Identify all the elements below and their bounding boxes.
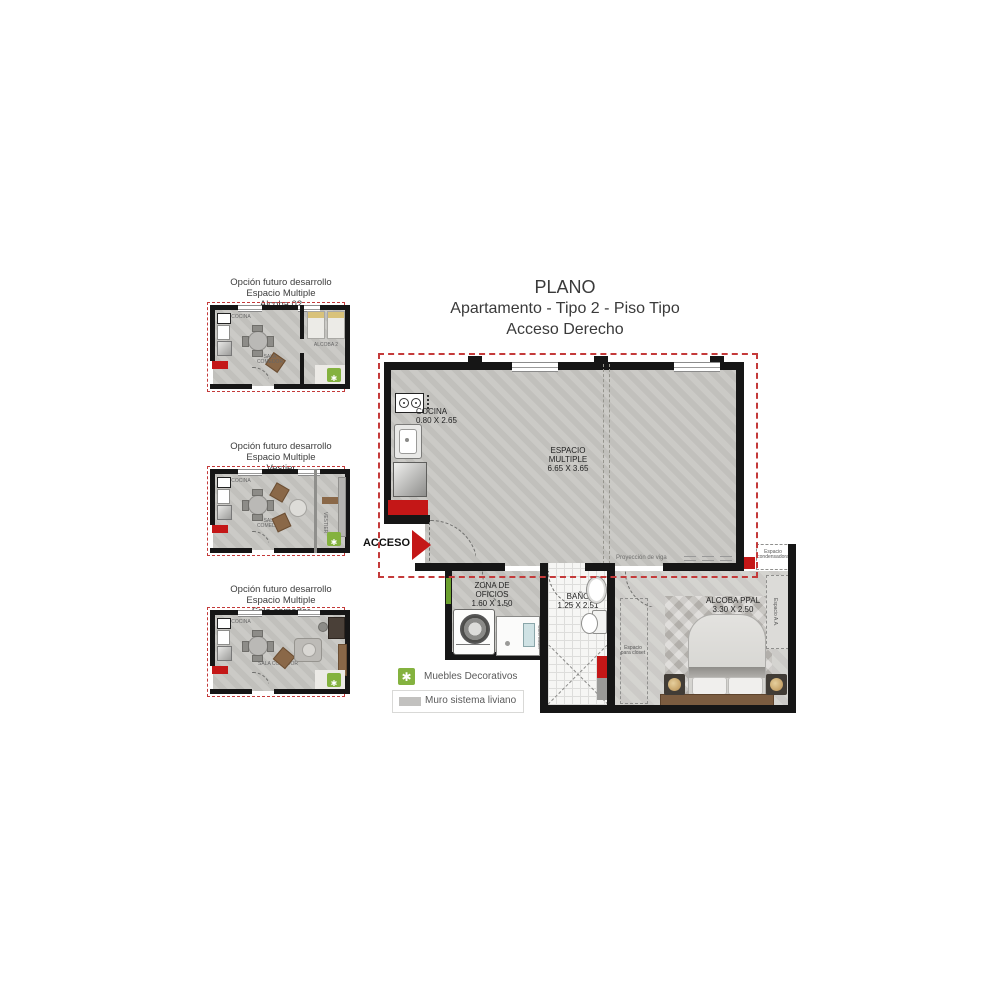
wall-segment bbox=[274, 548, 350, 553]
wall-segment bbox=[210, 469, 350, 474]
window bbox=[238, 305, 262, 312]
chair-icon bbox=[242, 500, 249, 511]
muro-liviano-swatch bbox=[399, 697, 421, 706]
legend-item-2: Muro sistema liviano bbox=[392, 690, 524, 713]
dining-table-icon bbox=[248, 495, 268, 515]
asterisk-icon: ✱ bbox=[331, 374, 338, 383]
chair-icon bbox=[242, 641, 249, 652]
red-counter bbox=[212, 361, 228, 369]
title-line-2: Apartamento - Tipo 2 - Piso Tipo bbox=[395, 298, 735, 319]
mini-room-label: COCINA bbox=[228, 479, 254, 484]
pillow-icon bbox=[692, 677, 727, 695]
legend-label-muebles: Muebles Decorativos bbox=[424, 671, 517, 682]
annotation-line: condensadora bbox=[757, 555, 789, 560]
caption-line: Opción futuro desarrollo bbox=[196, 441, 366, 452]
fridge-icon bbox=[217, 505, 232, 520]
washer-panel-line bbox=[456, 644, 490, 645]
lamp-icon bbox=[668, 678, 681, 691]
wall-segment bbox=[300, 305, 304, 339]
option-thumbnail-alcoba02: COCINA SALA COMEDOR ALCOBA 2 ✱ bbox=[210, 305, 350, 389]
chair-icon bbox=[267, 500, 274, 511]
unit-boundary-dashed bbox=[378, 353, 758, 578]
title-line-1: PLANO bbox=[395, 276, 735, 298]
side-table-icon bbox=[289, 499, 307, 517]
bed-icon bbox=[307, 311, 325, 339]
sink-icon bbox=[217, 325, 230, 340]
muebles-decorativos-icon: ✱ bbox=[398, 668, 415, 685]
annotation-line: para closet bbox=[618, 651, 648, 656]
dining-table-icon bbox=[248, 636, 268, 656]
chair-icon bbox=[267, 641, 274, 652]
option-thumbnail-vestier: COCINA SALA COMEDOR VESTIER ✱ bbox=[210, 469, 350, 553]
nightstand-icon bbox=[664, 674, 685, 695]
desk-icon bbox=[328, 617, 345, 639]
door-swing-arc bbox=[252, 672, 269, 689]
legend-label-muro: Muro sistema liviano bbox=[425, 695, 516, 706]
chair-icon bbox=[267, 336, 274, 347]
sink-icon bbox=[217, 489, 230, 504]
pillow-icon bbox=[728, 677, 763, 695]
wall-segment bbox=[210, 610, 215, 666]
wall-segment bbox=[210, 548, 252, 553]
sink-icon bbox=[217, 630, 230, 645]
asterisk-icon: ✱ bbox=[331, 538, 338, 547]
red-counter bbox=[212, 525, 228, 533]
chair-icon bbox=[242, 336, 249, 347]
wall-segment bbox=[274, 689, 350, 694]
caption-line: Opción futuro desarrollo bbox=[196, 277, 366, 288]
caption-line: Espacio Multiple bbox=[196, 595, 366, 606]
fridge-icon bbox=[217, 341, 232, 356]
chair-icon bbox=[252, 489, 263, 496]
green-wall-strip bbox=[446, 578, 451, 604]
sofa-icon bbox=[294, 638, 322, 662]
fridge-icon bbox=[217, 646, 232, 661]
legend-item-1: ✱ bbox=[398, 668, 415, 685]
chair-icon bbox=[252, 325, 263, 332]
caption-line: Espacio Multiple bbox=[196, 452, 366, 463]
muebles-decorativos-marker: ✱ bbox=[327, 532, 341, 546]
lamp-icon bbox=[770, 678, 783, 691]
window bbox=[298, 610, 320, 617]
caption-line: Espacio Multiple bbox=[196, 288, 366, 299]
dining-table-icon bbox=[248, 331, 268, 351]
wall-segment bbox=[788, 544, 796, 712]
utility-counter-icon bbox=[496, 616, 540, 656]
espacio-aa-label: Espacio A.A. bbox=[772, 584, 777, 640]
mini-room-label: SALA COMEDOR bbox=[252, 355, 288, 365]
asterisk-icon: ✱ bbox=[401, 670, 411, 684]
closet-rack-icon bbox=[338, 477, 346, 537]
wall-segment bbox=[345, 305, 350, 389]
mini-room-label: COCINA bbox=[228, 315, 254, 320]
page-title: PLANO Apartamento - Tipo 2 - Piso Tipo A… bbox=[395, 276, 735, 340]
door-swing-arc bbox=[252, 531, 269, 548]
floorplan-sheet: PLANO Apartamento - Tipo 2 - Piso Tipo A… bbox=[0, 0, 1000, 1000]
washer-door bbox=[460, 614, 490, 644]
closet-label: Espacio para closet bbox=[618, 646, 648, 656]
bed-icon bbox=[688, 614, 766, 700]
wall-segment bbox=[540, 705, 796, 713]
drain-dot bbox=[505, 641, 510, 646]
wall-segment bbox=[274, 384, 350, 389]
wall-segment bbox=[210, 689, 252, 694]
wall-segment bbox=[540, 563, 548, 712]
utility-sink bbox=[523, 623, 535, 647]
sofa-cushion bbox=[302, 643, 316, 657]
window bbox=[238, 610, 262, 617]
wall-segment bbox=[210, 469, 215, 525]
wall-segment bbox=[210, 610, 350, 615]
door-swing-arc bbox=[252, 367, 269, 384]
window bbox=[238, 469, 262, 476]
wall-segment bbox=[300, 353, 304, 389]
bathroom-sink-icon bbox=[586, 576, 607, 604]
caption-line: Opción futuro desarrollo bbox=[196, 584, 366, 595]
muebles-decorativos-marker: ✱ bbox=[327, 673, 341, 687]
light-wall-segment bbox=[314, 469, 317, 553]
bed-icon bbox=[327, 311, 345, 339]
wall-segment bbox=[210, 384, 252, 389]
option-thumbnail-sala: COCINA SALA COMEDOR ✱ bbox=[210, 610, 350, 694]
mini-room-label: COCINA bbox=[228, 620, 254, 625]
red-fixture bbox=[597, 656, 607, 678]
chair-icon bbox=[252, 630, 263, 637]
washing-machine-icon bbox=[453, 609, 495, 655]
nightstand-icon bbox=[766, 674, 787, 695]
wall-segment bbox=[607, 563, 615, 712]
wall-segment bbox=[210, 305, 350, 310]
gray-fixture bbox=[597, 678, 607, 700]
asterisk-icon: ✱ bbox=[331, 679, 338, 688]
toilet-bowl-icon bbox=[581, 613, 598, 634]
bed-blanket bbox=[328, 312, 344, 318]
mini-room-label: ALCOBA 2 bbox=[308, 343, 344, 348]
muebles-decorativos-marker: ✱ bbox=[327, 368, 341, 382]
desk-chair-icon bbox=[318, 622, 328, 632]
wall-segment bbox=[210, 305, 215, 361]
condensadora-label: Espacio condensadora bbox=[757, 550, 789, 560]
bed-blanket bbox=[308, 312, 324, 318]
title-line-3: Acceso Derecho bbox=[395, 319, 735, 340]
red-counter bbox=[212, 666, 228, 674]
